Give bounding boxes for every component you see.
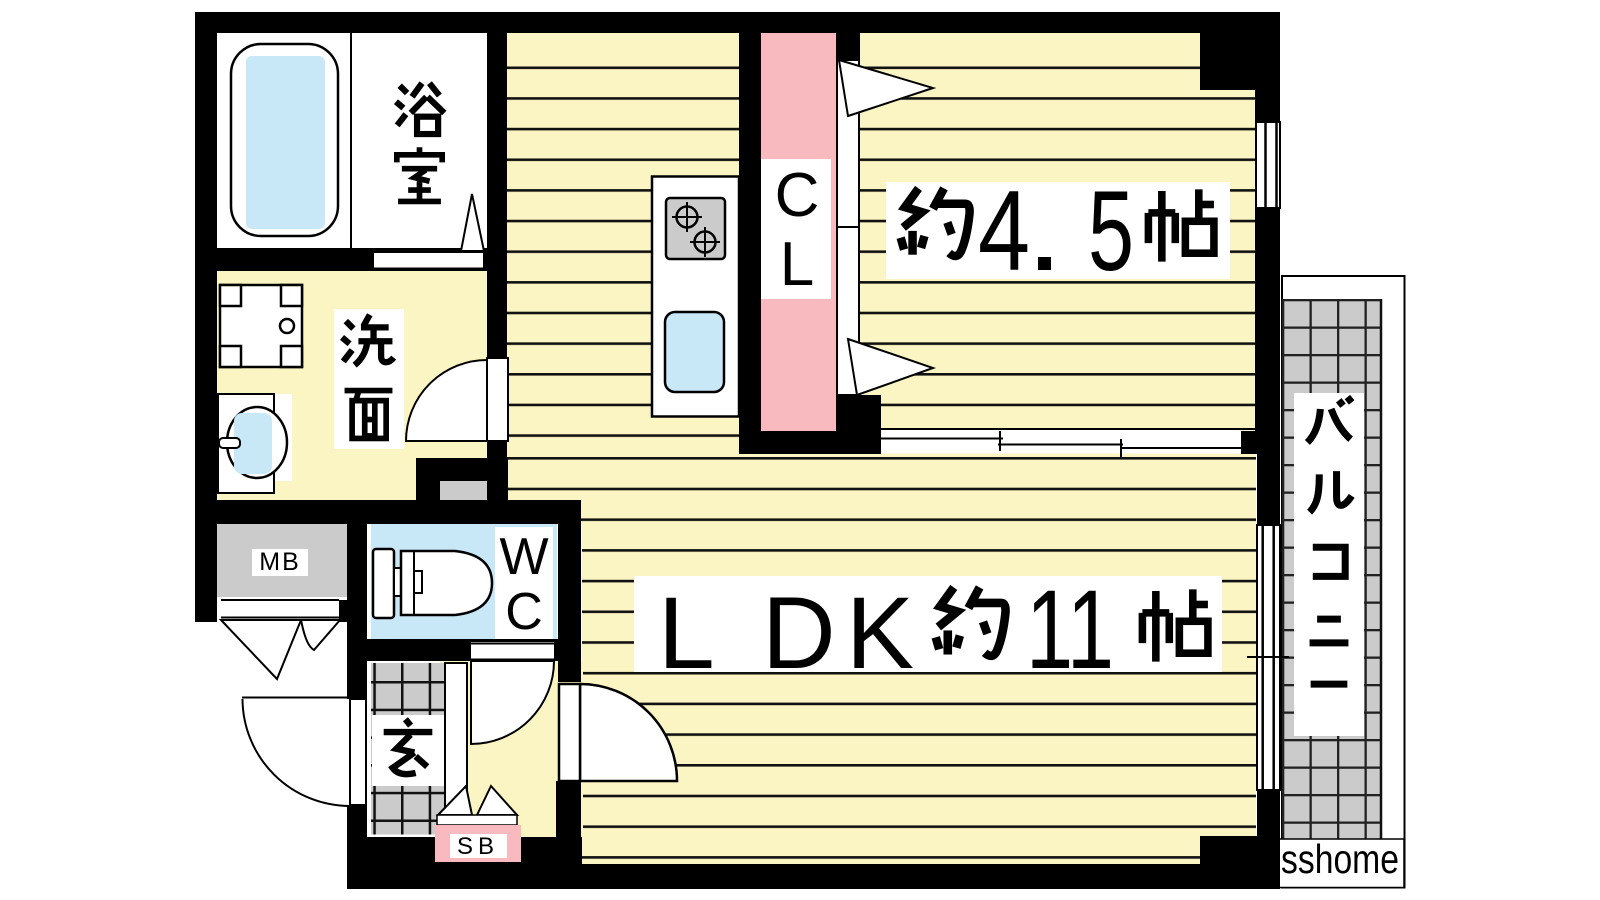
svg-text:W: W	[499, 528, 548, 586]
svg-text:11: 11	[1026, 567, 1114, 692]
svg-text:MB: MB	[259, 548, 301, 576]
svg-text:L: L	[658, 576, 715, 690]
svg-text:L: L	[780, 230, 814, 299]
svg-text:D: D	[762, 576, 836, 690]
svg-text:sshome: sshome	[1281, 836, 1399, 882]
svg-text:4: 4	[978, 168, 1030, 295]
svg-text:C: C	[505, 583, 543, 641]
svg-text:SB: SB	[457, 833, 499, 860]
svg-text:K: K	[846, 576, 914, 690]
svg-text:C: C	[775, 161, 820, 230]
svg-text:5: 5	[1088, 168, 1134, 295]
